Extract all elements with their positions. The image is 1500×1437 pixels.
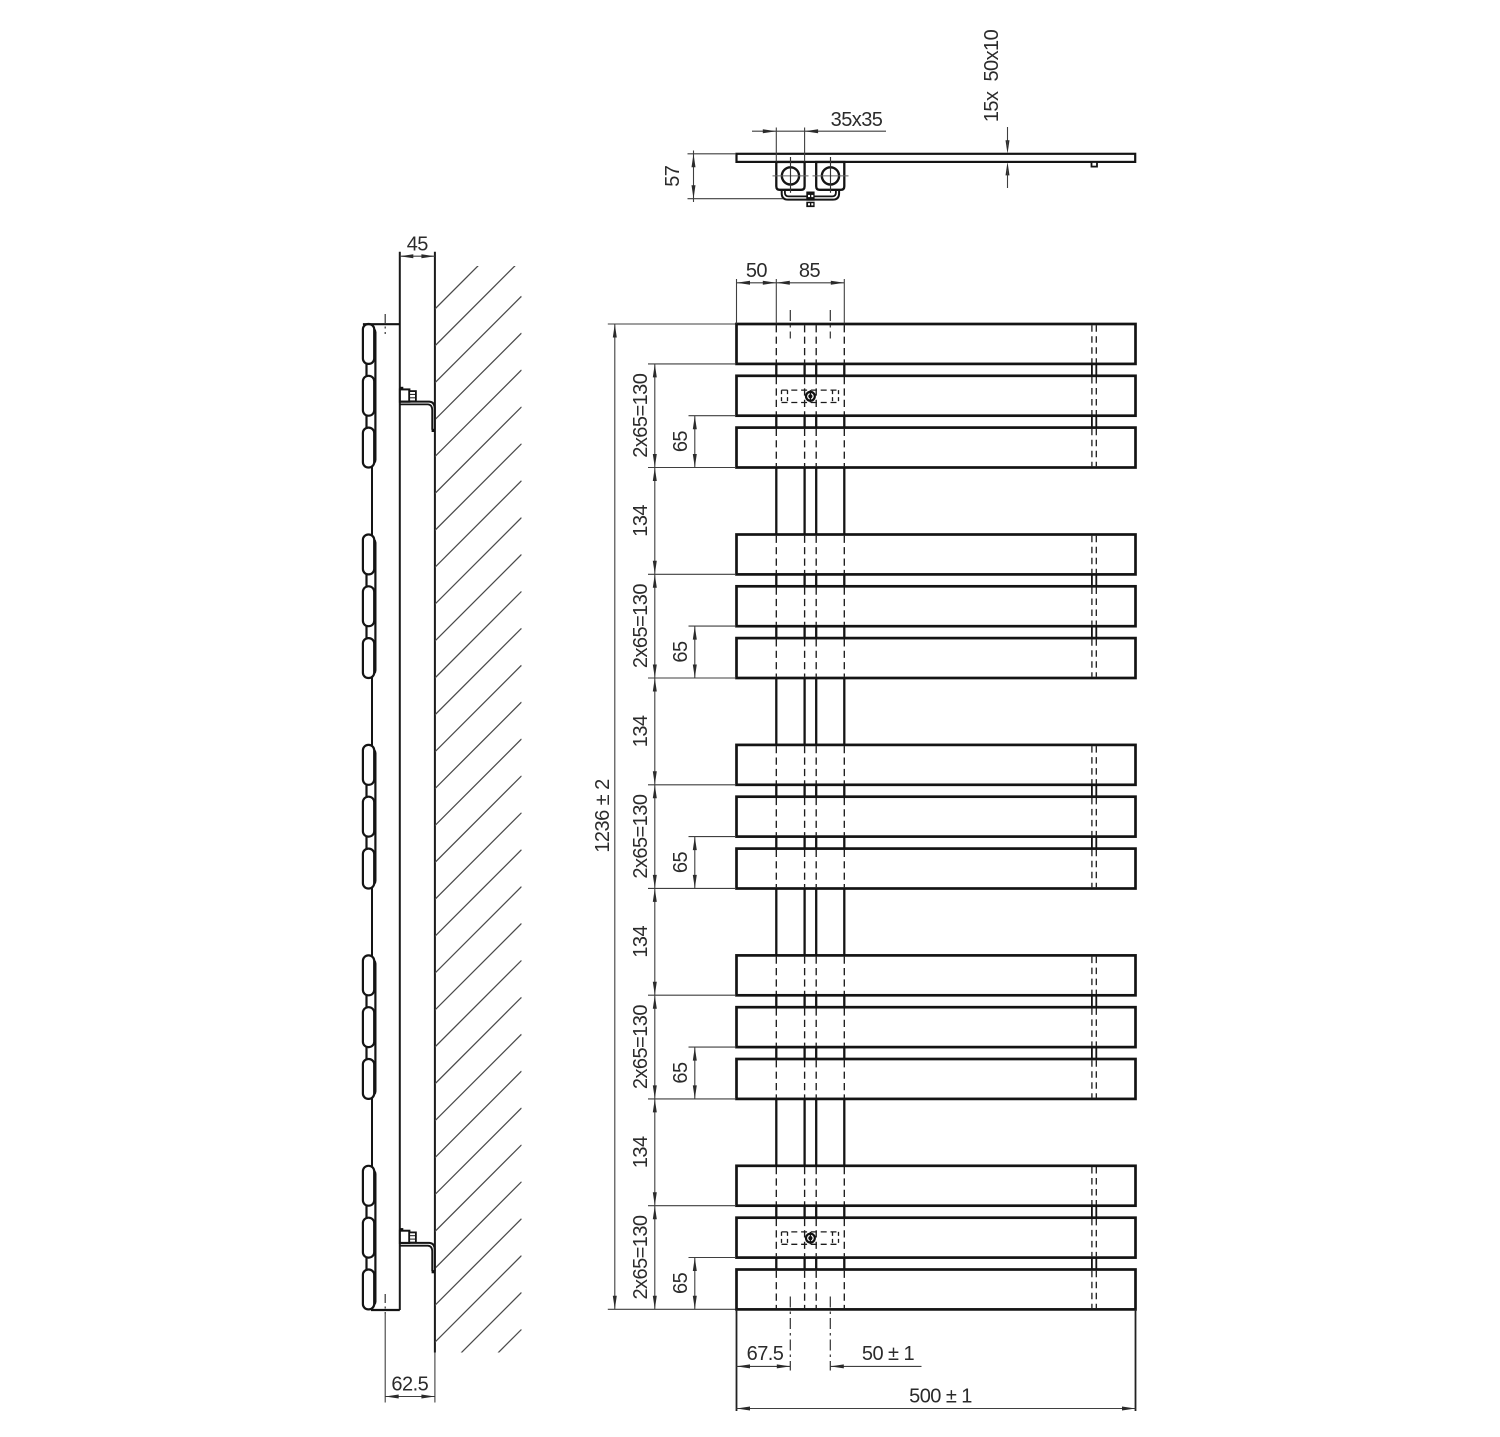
svg-text:2x65=130: 2x65=130 [630,1005,652,1089]
svg-text:57: 57 [662,165,684,187]
svg-text:67.5: 67.5 [747,1343,784,1365]
svg-text:134: 134 [630,926,652,958]
svg-text:50 ± 1: 50 ± 1 [862,1343,915,1365]
svg-text:2x65=130: 2x65=130 [630,373,652,457]
svg-text:62.5: 62.5 [391,1374,428,1396]
svg-text:2x65=130: 2x65=130 [630,584,652,668]
svg-text:65: 65 [670,1062,692,1084]
svg-text:65: 65 [670,852,692,874]
svg-text:134: 134 [630,1136,652,1168]
svg-text:65: 65 [670,641,692,663]
svg-text:35x35: 35x35 [831,109,883,131]
svg-text:500 ± 1: 500 ± 1 [909,1386,972,1408]
svg-text:85: 85 [799,260,821,282]
svg-text:2x65=130: 2x65=130 [630,1215,652,1299]
svg-text:134: 134 [630,715,652,747]
svg-text:1236 ± 2: 1236 ± 2 [592,779,614,853]
svg-text:2x65=130: 2x65=130 [630,794,652,878]
svg-text:65: 65 [670,1272,692,1294]
svg-text:65: 65 [670,431,692,453]
svg-text:45: 45 [407,234,429,256]
svg-text:15x 50x10: 15x 50x10 [981,29,1003,122]
svg-text:134: 134 [630,505,652,537]
svg-text:50: 50 [746,260,768,282]
